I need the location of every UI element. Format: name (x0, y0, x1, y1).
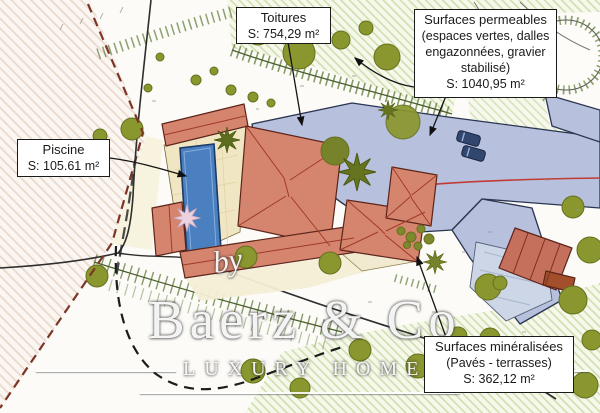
label-piscine-area: S: 105.61 m² (21, 158, 106, 174)
label-mineralisees-detail: (Pavés - terrasses) (428, 355, 570, 371)
site-plan-page: by Baerz & Co LUXURY HOMES Toitures S: 7… (0, 0, 600, 413)
label-toitures: Toitures S: 754,29 m² (236, 7, 331, 44)
label-surfaces-mineralisees: Surfaces minéralisées (Pavés - terrasses… (424, 336, 574, 393)
label-toitures-title: Toitures (240, 10, 327, 26)
swimming-pool (180, 144, 221, 256)
label-surfaces-permeables: Surfaces permeables (espaces vertes, dal… (414, 9, 557, 98)
label-toitures-area: S: 754,29 m² (240, 26, 327, 42)
label-piscine: Piscine S: 105.61 m² (17, 139, 110, 177)
label-permeables-detail3: stabilisé) (418, 60, 553, 76)
label-mineralisees-title: Surfaces minéralisées (428, 339, 570, 355)
pink-flower-icon (174, 205, 201, 232)
label-permeables-area: S: 1040,95 m² (418, 76, 553, 92)
label-piscine-title: Piscine (21, 142, 106, 158)
label-permeables-detail2: engazonnées, gravier (418, 44, 553, 60)
label-permeables-title: Surfaces permeables (418, 12, 553, 28)
label-permeables-detail1: (espaces vertes, dalles (418, 28, 553, 44)
label-mineralisees-area: S: 362,12 m² (428, 371, 570, 387)
